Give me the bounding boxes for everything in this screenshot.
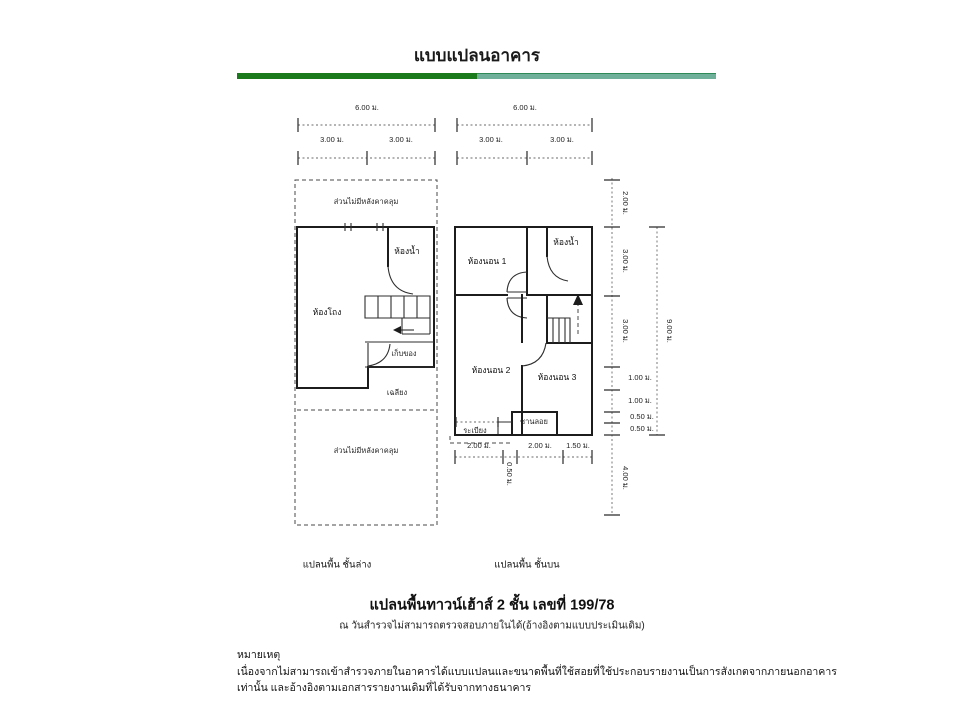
- label-upper-bedroom2: ห้องนอน 2: [472, 363, 511, 377]
- caption-upper-floor: แปลนพื้น ชั้นบน: [494, 558, 559, 573]
- note-heading: หมายเหตุ: [237, 646, 280, 663]
- note-line2: เท่านั้น และอ้างอิงตามเอกสารรายงานเดิมที…: [237, 679, 531, 696]
- dim-bottom-1: 2.00 ม.: [467, 440, 491, 452]
- label-upper-bedroom3: ห้องนอน 3: [538, 370, 577, 384]
- dim-bottom-2: 0.50 ม.: [503, 462, 515, 486]
- label-ground-front-area: ส่วนไม่มีหลังคาคลุม: [334, 196, 399, 208]
- label-ground-rear-area: ส่วนไม่มีหลังคาคลุม: [334, 445, 399, 457]
- stair-down-arrow-icon: [393, 326, 401, 334]
- label-upper-balcony: ระเบียง: [463, 425, 486, 437]
- label-ground-porch: เฉลียง: [387, 387, 407, 399]
- dim-right-total: 9.00 ม.: [663, 319, 675, 343]
- dim-chain-05m-b: 0.50 ม.: [630, 423, 654, 435]
- drawing-subtitle: ณ วันสำรวจไม่สามารถตรวจสอบภายในได้(อ้างอ…: [339, 619, 644, 634]
- label-ground-storage: เก็บของ: [391, 348, 416, 360]
- upper-stairs: [547, 294, 592, 343]
- dim-chain-3m-b: 3.00 ม.: [619, 319, 631, 343]
- dim-bottom-3: 2.00 ม.: [528, 440, 552, 452]
- dim-bottom-4: 1.50 ม.: [566, 440, 590, 452]
- note-line1: เนื่องจากไม่สามารถเข้าสำรวจภายในอาคารได้…: [237, 663, 837, 680]
- dim-upper-right: 3.00 ม.: [550, 134, 574, 146]
- label-upper-deck: ชานลอย: [520, 416, 548, 428]
- dim-ground-left: 3.00 ม.: [320, 134, 344, 146]
- caption-ground-floor: แปลนพื้น ชั้นล่าง: [303, 558, 372, 573]
- dim-chain-4m: 4.00 ม.: [619, 466, 631, 490]
- label-ground-bathroom: ห้องน้ำ: [394, 244, 419, 258]
- drawing-title: แปลนพื้นทาวน์เฮ้าส์ 2 ชั้น เลขที่ 199/78: [370, 594, 615, 617]
- ground-stairs: [365, 296, 430, 334]
- dim-upper-total: 6.00 ม.: [513, 102, 537, 114]
- dim-chain-1m-b: 1.00 ม.: [628, 395, 652, 407]
- dim-chain-05m-a: 0.50 ม.: [630, 411, 654, 423]
- label-upper-bathroom: ห้องน้ำ: [553, 235, 578, 249]
- dim-upper-left: 3.00 ม.: [479, 134, 503, 146]
- document-page: แบบแปลนอาคาร: [0, 0, 960, 720]
- double-door: [507, 272, 527, 318]
- right-dimension-chain: [604, 178, 665, 515]
- dim-ground-right: 3.00 ม.: [389, 134, 413, 146]
- label-ground-hall: ห้องโถง: [313, 305, 342, 319]
- dim-chain-2m: 2.00 ม.: [619, 191, 631, 215]
- dim-chain-1m-a: 1.00 ม.: [628, 372, 652, 384]
- dim-chain-3m-a: 3.00 ม.: [619, 249, 631, 273]
- bottom-dimension-line: [455, 450, 592, 464]
- label-upper-bedroom1: ห้องนอน 1: [468, 254, 507, 268]
- dim-ground-total: 6.00 ม.: [355, 102, 379, 114]
